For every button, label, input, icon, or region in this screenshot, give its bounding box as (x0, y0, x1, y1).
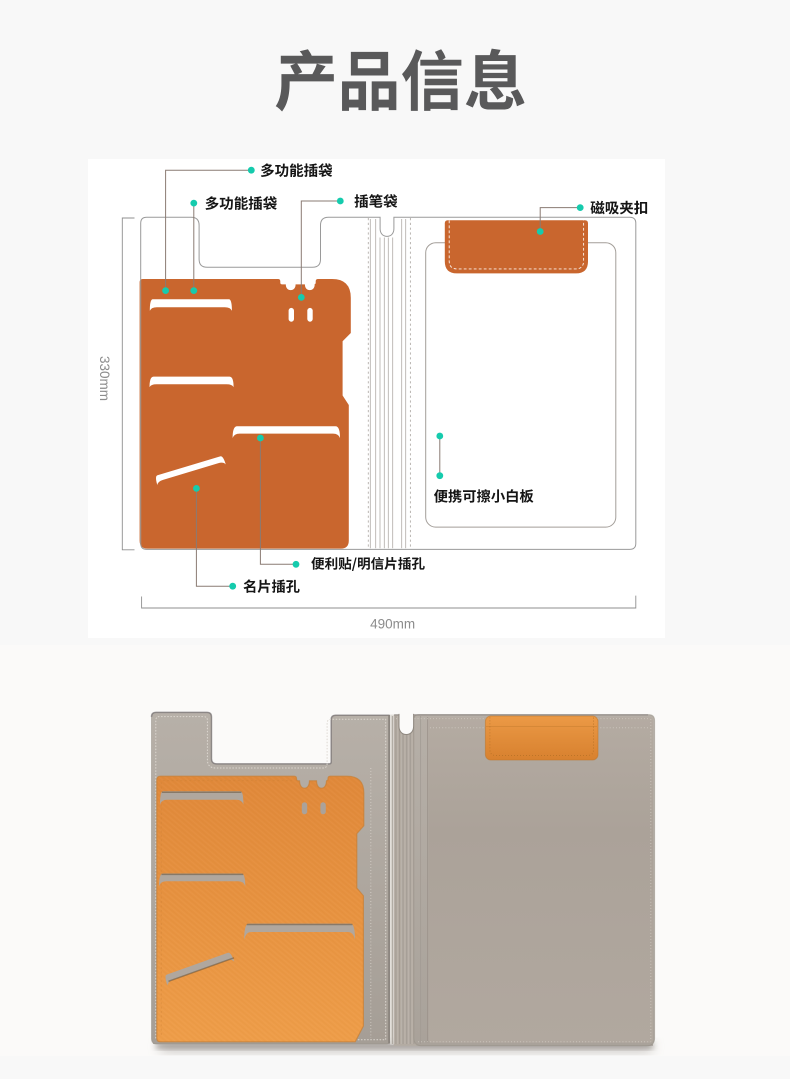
svg-text:490mm: 490mm (370, 617, 415, 632)
svg-text:330mm: 330mm (97, 356, 112, 401)
